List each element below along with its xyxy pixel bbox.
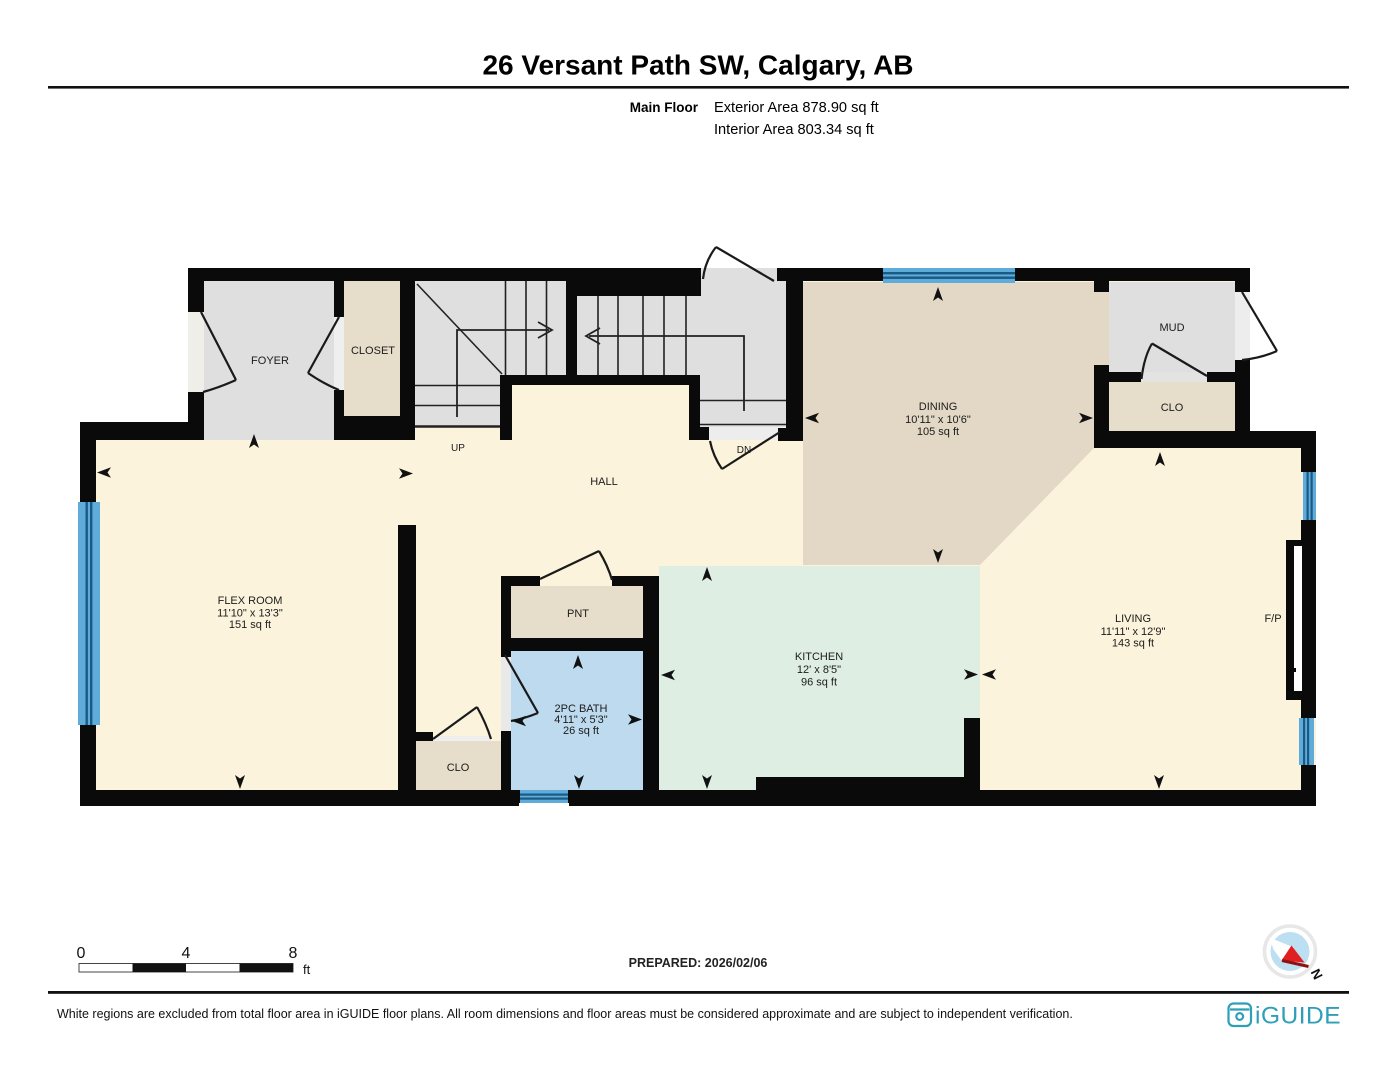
svg-text:CLOSET: CLOSET — [351, 345, 395, 357]
svg-text:4: 4 — [182, 945, 191, 962]
svg-text:MUD: MUD — [1159, 322, 1184, 334]
svg-text:HALL: HALL — [590, 476, 618, 488]
svg-text:PREPARED: 2026/02/06: PREPARED: 2026/02/06 — [629, 956, 768, 970]
svg-text:Interior Area 803.34 sq ft: Interior Area 803.34 sq ft — [714, 122, 874, 138]
svg-text:Exterior Area 878.90 sq ft: Exterior Area 878.90 sq ft — [714, 100, 879, 116]
svg-text:0: 0 — [77, 945, 86, 962]
svg-text:iGUIDE: iGUIDE — [1255, 1003, 1341, 1030]
svg-text:11'11" x 12'9": 11'11" x 12'9" — [1101, 626, 1166, 638]
svg-text:CLO: CLO — [1161, 402, 1184, 414]
svg-text:105 sq ft: 105 sq ft — [917, 426, 959, 438]
svg-text:11'10" x 13'3": 11'10" x 13'3" — [217, 608, 283, 620]
svg-text:White regions are excluded fro: White regions are excluded from total fl… — [57, 1007, 1073, 1021]
svg-text:12' x 8'5": 12' x 8'5" — [797, 664, 841, 676]
svg-text:Main Floor: Main Floor — [630, 100, 699, 115]
svg-text:DINING: DINING — [919, 401, 958, 413]
svg-text:26 Versant Path SW, Calgary, A: 26 Versant Path SW, Calgary, AB — [482, 50, 913, 81]
svg-text:F/P: F/P — [1264, 613, 1281, 625]
svg-text:143 sq ft: 143 sq ft — [1112, 638, 1154, 650]
svg-text:10'11" x 10'6": 10'11" x 10'6" — [905, 414, 971, 426]
svg-text:UP: UP — [451, 443, 465, 454]
svg-text:CLO: CLO — [447, 762, 470, 774]
svg-text:FLEX ROOM: FLEX ROOM — [218, 595, 283, 607]
svg-text:KITCHEN: KITCHEN — [795, 651, 843, 663]
svg-text:DN: DN — [737, 445, 751, 456]
svg-text:8: 8 — [289, 945, 298, 962]
svg-text:26 sq ft: 26 sq ft — [563, 725, 599, 737]
svg-text:151 sq ft: 151 sq ft — [229, 619, 271, 631]
svg-text:LIVING: LIVING — [1115, 613, 1151, 625]
svg-text:96 sq ft: 96 sq ft — [801, 677, 837, 689]
svg-text:FOYER: FOYER — [251, 355, 289, 367]
svg-text:ft: ft — [303, 962, 311, 977]
svg-text:PNT: PNT — [567, 608, 589, 620]
